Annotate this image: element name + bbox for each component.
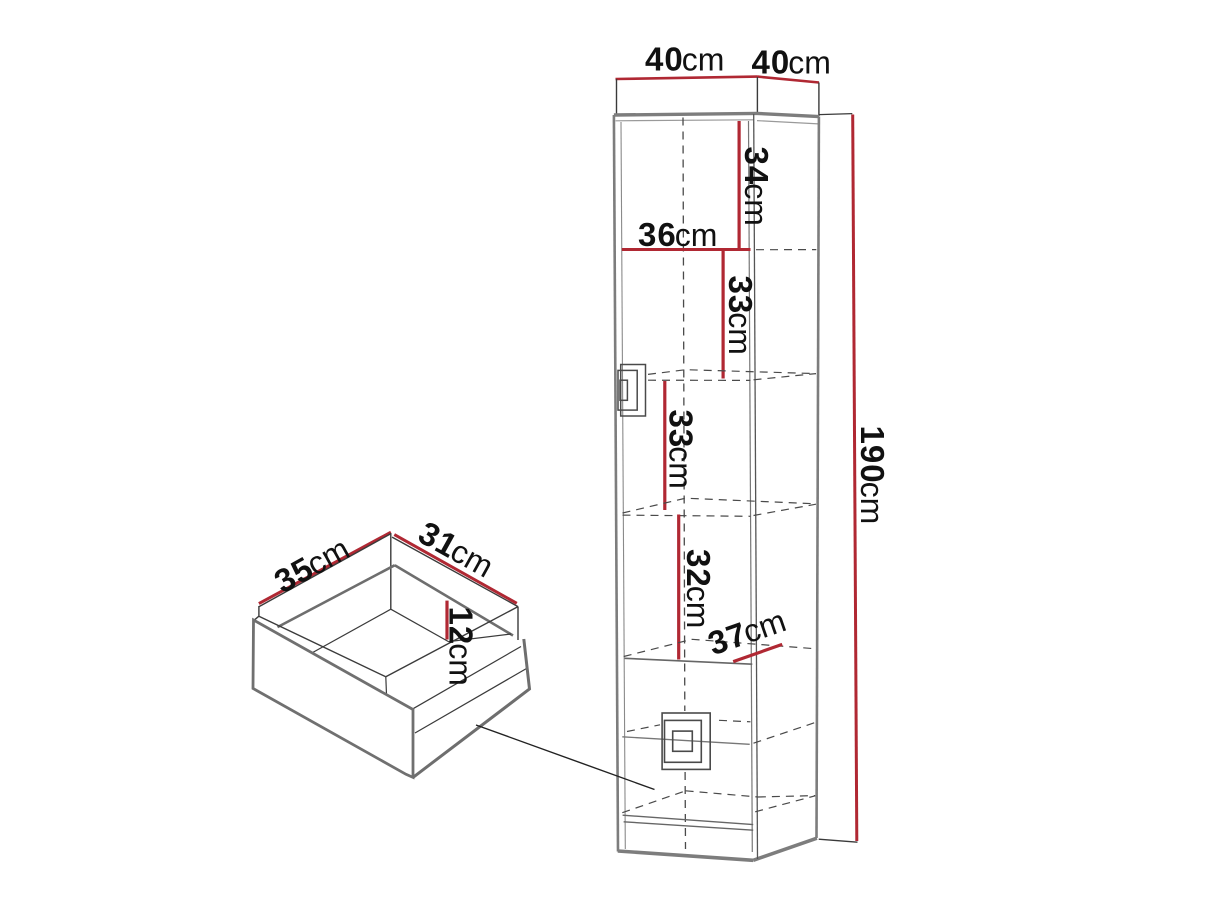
svg-text:40cm: 40cm	[645, 41, 724, 78]
svg-text:34cm: 34cm	[738, 147, 775, 226]
svg-text:33cm: 33cm	[663, 410, 700, 489]
svg-text:32cm: 32cm	[680, 549, 717, 628]
svg-text:36cm: 36cm	[638, 216, 717, 253]
svg-text:40cm: 40cm	[752, 44, 831, 81]
svg-text:33cm: 33cm	[722, 276, 759, 355]
svg-text:12cm: 12cm	[443, 607, 480, 686]
svg-text:190cm: 190cm	[854, 426, 891, 525]
